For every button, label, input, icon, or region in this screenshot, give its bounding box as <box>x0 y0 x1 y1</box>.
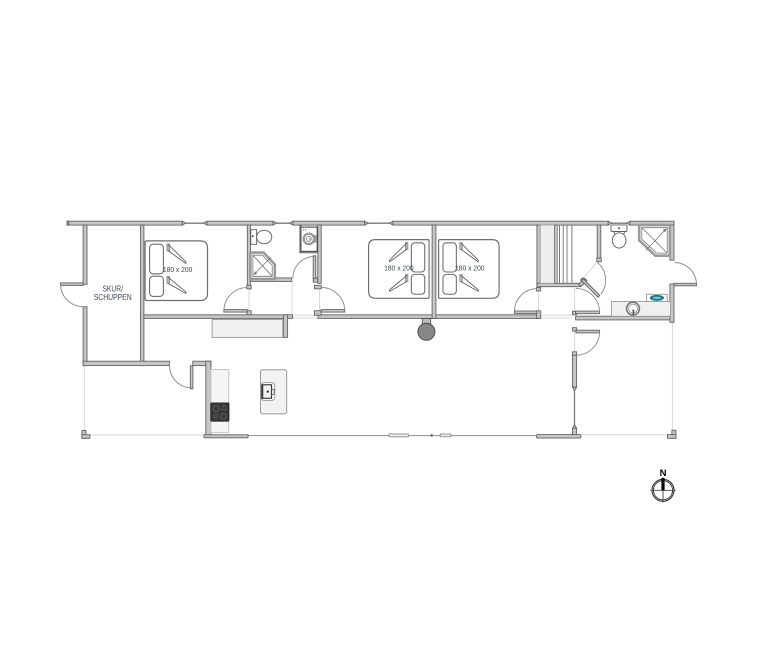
svg-text:180 x 200: 180 x 200 <box>455 264 485 273</box>
svg-text:180 x 200: 180 x 200 <box>163 265 193 274</box>
svg-text:180 x 200: 180 x 200 <box>384 264 414 273</box>
svg-text:SCHUPPEN: SCHUPPEN <box>94 293 132 302</box>
svg-text:N: N <box>660 468 667 479</box>
